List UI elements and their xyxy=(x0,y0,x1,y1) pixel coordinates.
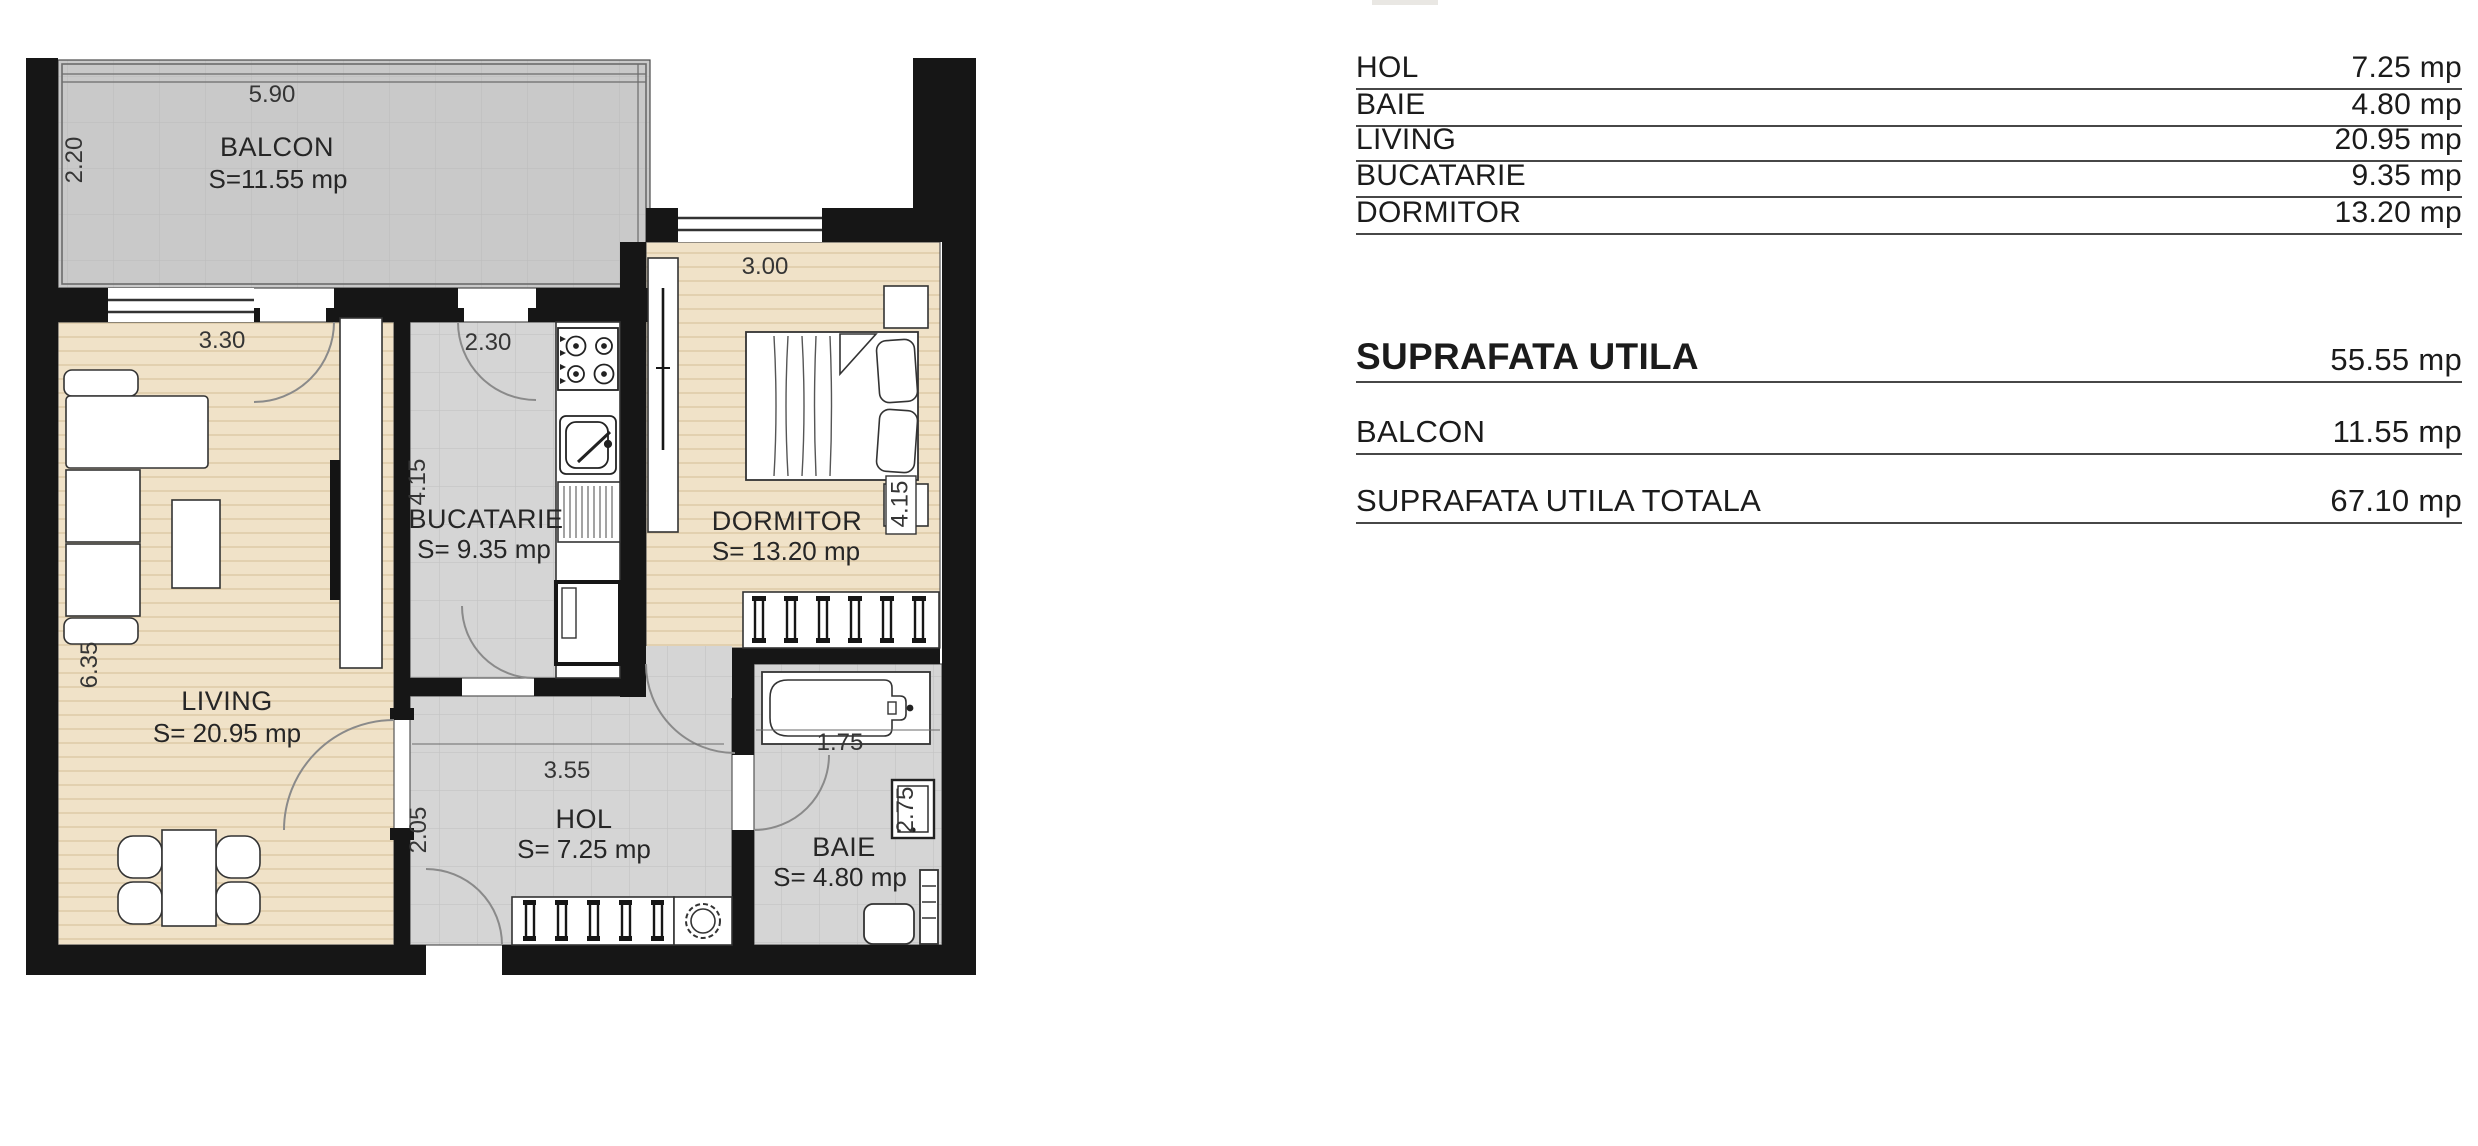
kitchen-name: BUCATARIE xyxy=(408,504,563,534)
balcony-area: S=11.55 mp xyxy=(208,164,347,194)
living-area: S= 20.95 mp xyxy=(153,718,301,748)
row-label: BUCATARIE xyxy=(1356,159,1526,196)
fridge xyxy=(556,582,620,664)
row-value: 55.55 mp xyxy=(2330,342,2462,381)
hall-wardrobe xyxy=(512,897,674,945)
stove xyxy=(558,328,618,390)
row-value: 9.35 mp xyxy=(2352,159,2463,196)
kitchen-sink xyxy=(560,416,616,474)
hall-area: S= 7.25 mp xyxy=(517,834,651,864)
nightstand-top xyxy=(884,286,928,328)
living-dim-left: 6.35 xyxy=(76,642,103,689)
dishwasher xyxy=(558,482,620,542)
balcony-name: BALCON xyxy=(220,132,334,162)
balcony-dim-left: 2.20 xyxy=(61,137,88,184)
apartment-plan-page: 5.90 2.20 BALCON S=11.55 mp 3.30 6.35 LI… xyxy=(0,0,2478,1146)
living-dim-top: 3.30 xyxy=(199,327,246,354)
bath-name: BAIE xyxy=(812,832,876,862)
hall-dim-left: 2.05 xyxy=(405,807,432,854)
row-label: BALCON xyxy=(1356,414,1485,453)
dining-set xyxy=(118,830,260,926)
living-window xyxy=(108,288,254,322)
table-row-living: LIVING 20.95 mp xyxy=(1356,122,2462,162)
row-label: SUPRAFATA UTILA xyxy=(1356,336,1699,381)
bedroom-dresser xyxy=(743,592,939,648)
bedroom-window xyxy=(678,208,822,242)
table-row-baie: BAIE 4.80 mp xyxy=(1356,87,2462,127)
kitchen-dim-left: 4.15 xyxy=(404,459,431,506)
table-row-total: SUPRAFATA UTILA TOTALA 67.10 mp xyxy=(1356,478,2462,524)
hall-dim-top: 3.55 xyxy=(544,757,591,784)
kitchen-area: S= 9.35 mp xyxy=(417,534,551,564)
kitchen-counter xyxy=(556,322,620,678)
row-label: SUPRAFATA UTILA TOTALA xyxy=(1356,483,1761,522)
bedroom-name: DORMITOR xyxy=(712,506,863,536)
washing-machine xyxy=(674,897,732,945)
table-row-dormitor: DORMITOR 13.20 mp xyxy=(1356,195,2462,235)
row-value: 20.95 mp xyxy=(2335,123,2462,160)
table-row-suprafata-utila: SUPRAFATA UTILA 55.55 mp xyxy=(1356,336,2462,383)
coffee-table xyxy=(172,500,220,588)
floor-plan: 5.90 2.20 BALCON S=11.55 mp 3.30 6.35 LI… xyxy=(22,30,982,980)
bedroom-area: S= 13.20 mp xyxy=(712,536,860,566)
kitchen-dim-top: 2.30 xyxy=(465,329,512,356)
row-value: 11.55 mp xyxy=(2333,414,2462,453)
bath-dim-top: 1.75 xyxy=(817,729,864,756)
table-row-balcon: BALCON 11.55 mp xyxy=(1356,411,2462,455)
bathroom-sink xyxy=(864,904,914,944)
bedroom-dim-right-box: 4.15 xyxy=(886,476,916,534)
row-label: DORMITOR xyxy=(1356,196,1521,233)
towel-radiator xyxy=(920,870,938,944)
hall-name: HOL xyxy=(555,804,612,834)
bedroom-dim-top: 3.00 xyxy=(742,253,789,280)
row-label: HOL xyxy=(1356,51,1419,88)
row-value: 7.25 mp xyxy=(2352,51,2463,88)
row-label: BAIE xyxy=(1356,88,1426,125)
row-label: LIVING xyxy=(1356,123,1456,160)
balcony-floor xyxy=(58,60,650,288)
bedroom-dim-right: 4.15 xyxy=(886,481,913,528)
cropped-content-remnant xyxy=(1372,0,1438,5)
bath-dim-right: 2.75 xyxy=(892,787,919,834)
table-row-hol: HOL 7.25 mp xyxy=(1356,48,2462,90)
bed xyxy=(746,332,918,480)
living-name: LIVING xyxy=(181,686,273,716)
row-value: 4.80 mp xyxy=(2352,88,2463,125)
table-row-bucatarie: BUCATARIE 9.35 mp xyxy=(1356,158,2462,198)
bath-area: S= 4.80 mp xyxy=(773,862,907,892)
bedroom-wardrobe xyxy=(648,258,678,532)
row-value: 67.10 mp xyxy=(2330,483,2462,522)
balcony-dim-top: 5.90 xyxy=(249,81,296,108)
row-value: 13.20 mp xyxy=(2335,196,2462,233)
